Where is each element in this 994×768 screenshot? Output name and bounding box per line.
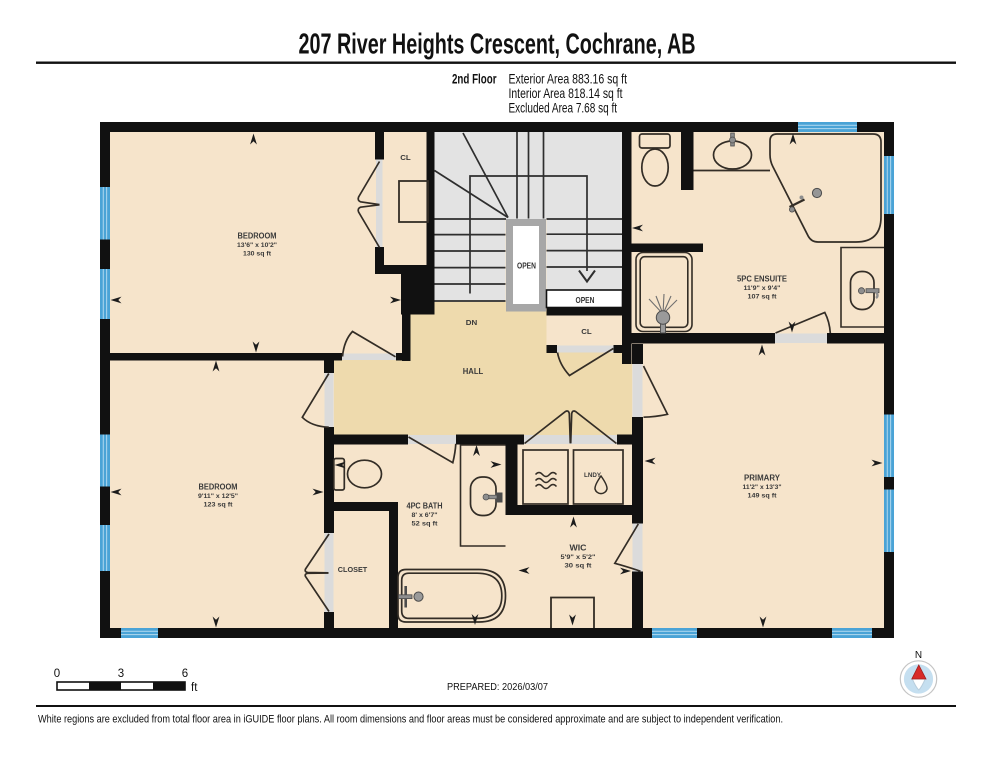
svg-text:107 sq ft: 107 sq ft [748, 294, 778, 301]
svg-text:11'2" x 13'3": 11'2" x 13'3" [743, 484, 782, 491]
svg-text:White regions are excluded fro: White regions are excluded from total fl… [38, 714, 783, 726]
svg-text:2nd Floor: 2nd Floor [452, 71, 497, 87]
svg-text:5'9" x 5'2": 5'9" x 5'2" [561, 554, 596, 561]
svg-text:WIC: WIC [570, 544, 587, 553]
svg-text:30 sq ft: 30 sq ft [565, 563, 593, 570]
svg-text:OPEN: OPEN [576, 295, 595, 305]
svg-text:DN: DN [466, 318, 478, 327]
svg-text:0: 0 [54, 668, 60, 680]
svg-text:CL: CL [400, 153, 411, 162]
svg-text:N: N [915, 650, 922, 661]
svg-text:4PC BATH: 4PC BATH [407, 502, 443, 511]
svg-text:8' x 6'7": 8' x 6'7" [412, 512, 438, 519]
svg-text:OPEN: OPEN [517, 261, 536, 271]
svg-text:PRIMARY: PRIMARY [744, 474, 781, 483]
svg-text:BEDROOM: BEDROOM [199, 483, 238, 492]
svg-text:HALL: HALL [463, 367, 484, 376]
svg-text:5PC ENSUITE: 5PC ENSUITE [737, 275, 788, 284]
svg-text:9'11" x 12'5": 9'11" x 12'5" [198, 493, 238, 500]
svg-text:52 sq ft: 52 sq ft [412, 521, 439, 528]
svg-text:3: 3 [118, 668, 124, 680]
svg-text:13'6" x 10'2": 13'6" x 10'2" [237, 242, 277, 249]
svg-text:130 sq ft: 130 sq ft [243, 251, 272, 258]
svg-text:CL: CL [581, 327, 592, 336]
svg-text:207 River Heights Crescent, Co: 207 River Heights Crescent, Cochrane, AB [299, 29, 696, 61]
svg-text:CLOSET: CLOSET [338, 565, 368, 574]
svg-text:149 sq ft: 149 sq ft [748, 493, 778, 500]
svg-text:11'9" x 9'4": 11'9" x 9'4" [744, 285, 781, 292]
svg-text:Excluded Area 7.68 sq ft: Excluded Area 7.68 sq ft [509, 100, 618, 116]
svg-text:6: 6 [182, 668, 188, 680]
svg-text:123 sq ft: 123 sq ft [204, 502, 234, 509]
svg-text:BEDROOM: BEDROOM [238, 232, 277, 241]
svg-text:LNDY: LNDY [584, 472, 602, 479]
svg-text:ft: ft [191, 682, 198, 694]
svg-text:PREPARED: 2026/03/07: PREPARED: 2026/03/07 [447, 681, 548, 693]
